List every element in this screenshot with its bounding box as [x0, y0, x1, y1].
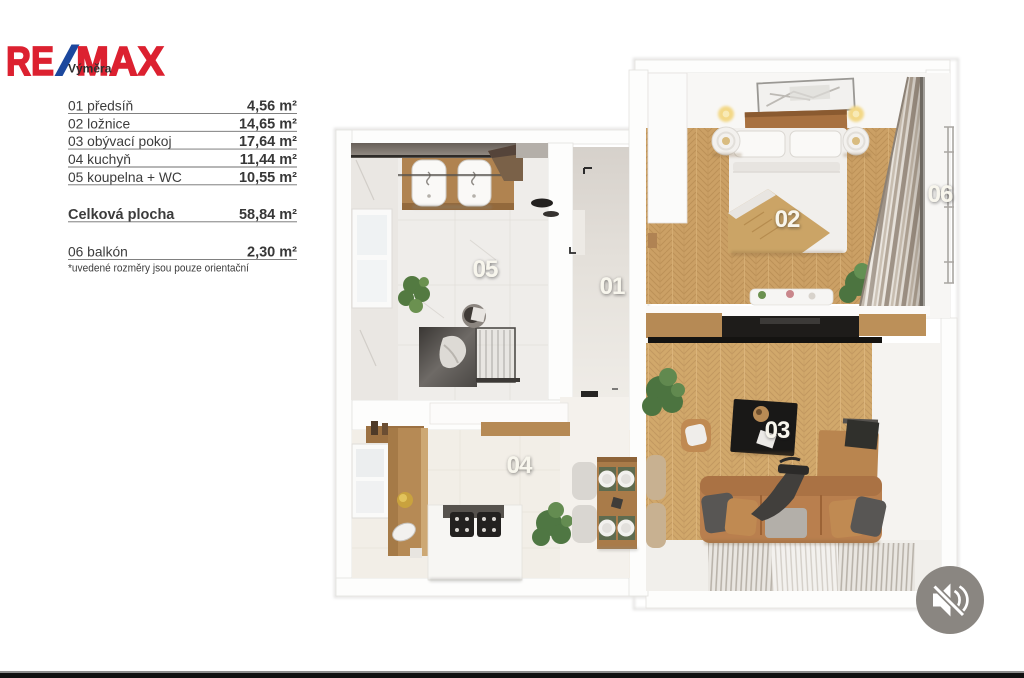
svg-text:04: 04 — [507, 452, 533, 479]
svg-text:17,64 m²: 17,64 m² — [239, 134, 297, 150]
svg-text:06: 06 — [928, 181, 953, 208]
svg-text:4,56 m²: 4,56 m² — [247, 98, 297, 114]
svg-text:RE: RE — [6, 38, 54, 84]
svg-text:03: 03 — [765, 417, 790, 444]
svg-text:10,55 m²: 10,55 m² — [239, 170, 297, 186]
svg-text:14,65 m²: 14,65 m² — [239, 116, 297, 132]
svg-text:Výměra: Výměra — [68, 62, 112, 76]
svg-text:05: 05 — [473, 256, 498, 283]
svg-text:02 ložnice: 02 ložnice — [68, 116, 130, 131]
svg-text:2,30 m²: 2,30 m² — [247, 244, 297, 260]
svg-text:Celková plocha: Celková plocha — [68, 207, 175, 223]
svg-text:01 předsíň: 01 předsíň — [68, 98, 133, 113]
svg-text:05 koupelna + WC: 05 koupelna + WC — [68, 170, 182, 185]
svg-text:03 obývací pokoj: 03 obývací pokoj — [68, 134, 172, 149]
svg-text:06 balkón: 06 balkón — [68, 244, 128, 259]
svg-text:01: 01 — [600, 273, 625, 300]
svg-text:04 kuchyň: 04 kuchyň — [68, 152, 131, 167]
svg-text:11,44 m²: 11,44 m² — [240, 152, 297, 168]
svg-text:58,84 m²: 58,84 m² — [239, 207, 297, 223]
svg-text:02: 02 — [775, 206, 800, 233]
svg-text:*uvedené rozměry jsou pouze or: *uvedené rozměry jsou pouze orientační — [68, 263, 249, 275]
